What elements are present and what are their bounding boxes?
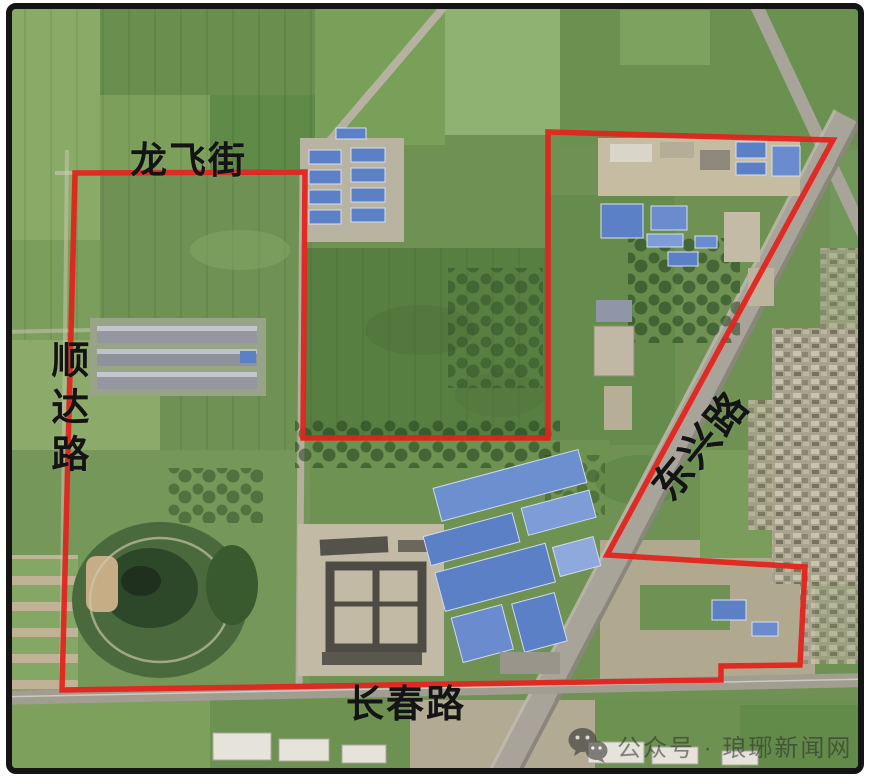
- road-label-changchun-road: 长春路: [346, 686, 466, 726]
- map-frame: 龙飞街 顺达路 东兴路 长春路 公众号 · 琅琊新闻网: [6, 3, 864, 774]
- boundary-overlay: [6, 3, 864, 774]
- map-world: 龙飞街 顺达路 东兴路 长春路 公众号 · 琅琊新闻网: [6, 3, 864, 774]
- road-label-shunda-road: 顺达路: [45, 340, 85, 481]
- watermark: 公众号 · 琅琊新闻网: [568, 727, 852, 763]
- wechat-icon: [568, 727, 608, 763]
- watermark-text: 公众号 · 琅琊新闻网: [617, 728, 852, 763]
- road-label-longfei-street: 龙飞街: [130, 142, 247, 181]
- page-container: 龙飞街 顺达路 东兴路 长春路 公众号 · 琅琊新闻网: [0, 0, 870, 783]
